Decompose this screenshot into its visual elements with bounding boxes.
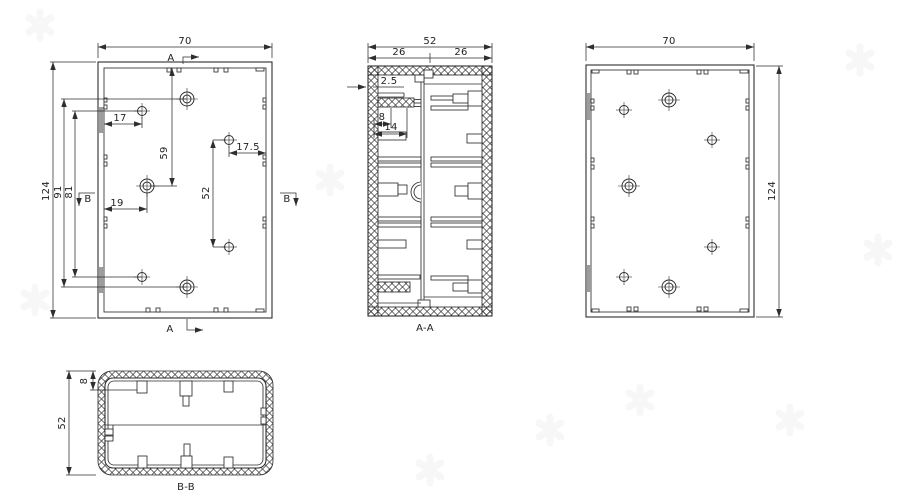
svg-text:B: B bbox=[84, 194, 91, 205]
front-view: 70 124 91 81 59 17 bbox=[41, 36, 296, 335]
svg-text:52: 52 bbox=[57, 416, 68, 429]
svg-text:59: 59 bbox=[159, 146, 170, 159]
svg-text:81: 81 bbox=[64, 185, 75, 198]
section-aa-label: A-A bbox=[416, 323, 434, 334]
svg-text:2.5: 2.5 bbox=[381, 76, 398, 87]
dim-aa-halves: 26 26 bbox=[368, 47, 492, 63]
svg-text:A: A bbox=[166, 324, 173, 335]
svg-text:8: 8 bbox=[79, 378, 90, 385]
svg-text:70: 70 bbox=[178, 36, 191, 47]
svg-text:124: 124 bbox=[767, 181, 778, 201]
drawing-sheet: 70 124 91 81 59 17 bbox=[0, 0, 900, 500]
svg-text:14: 14 bbox=[384, 122, 397, 133]
dim-back-width: 70 bbox=[586, 36, 754, 61]
svg-text:19: 19 bbox=[110, 198, 123, 209]
svg-text:52: 52 bbox=[201, 186, 212, 199]
svg-text:70: 70 bbox=[662, 36, 675, 47]
right-half-ribs bbox=[424, 84, 482, 297]
svg-text:26: 26 bbox=[392, 47, 405, 58]
section-aa-view: 52 26 26 2.5 8 14 A-A bbox=[347, 36, 492, 334]
dim-front-width: 70 bbox=[98, 36, 272, 58]
svg-text:124: 124 bbox=[41, 181, 52, 201]
section-marker-b-right: B bbox=[280, 193, 296, 206]
dim-back-height: 124 bbox=[756, 66, 783, 317]
svg-text:26: 26 bbox=[454, 47, 467, 58]
section-bb-view: 52 8 B-B bbox=[57, 371, 273, 493]
svg-text:17.5: 17.5 bbox=[236, 142, 259, 153]
svg-text:B: B bbox=[283, 194, 290, 205]
dim-bb-rim: 8 bbox=[79, 371, 93, 390]
dim-bb-depth: 52 bbox=[57, 371, 96, 475]
section-marker-a-bottom: A bbox=[166, 319, 203, 335]
svg-text:17: 17 bbox=[113, 113, 126, 124]
back-view: 70 124 bbox=[586, 36, 783, 317]
section-marker-b-left: B bbox=[79, 193, 95, 206]
svg-text:A: A bbox=[167, 53, 174, 64]
svg-text:91: 91 bbox=[53, 185, 64, 198]
svg-text:52: 52 bbox=[423, 36, 436, 47]
section-bb-label: B-B bbox=[177, 482, 195, 493]
